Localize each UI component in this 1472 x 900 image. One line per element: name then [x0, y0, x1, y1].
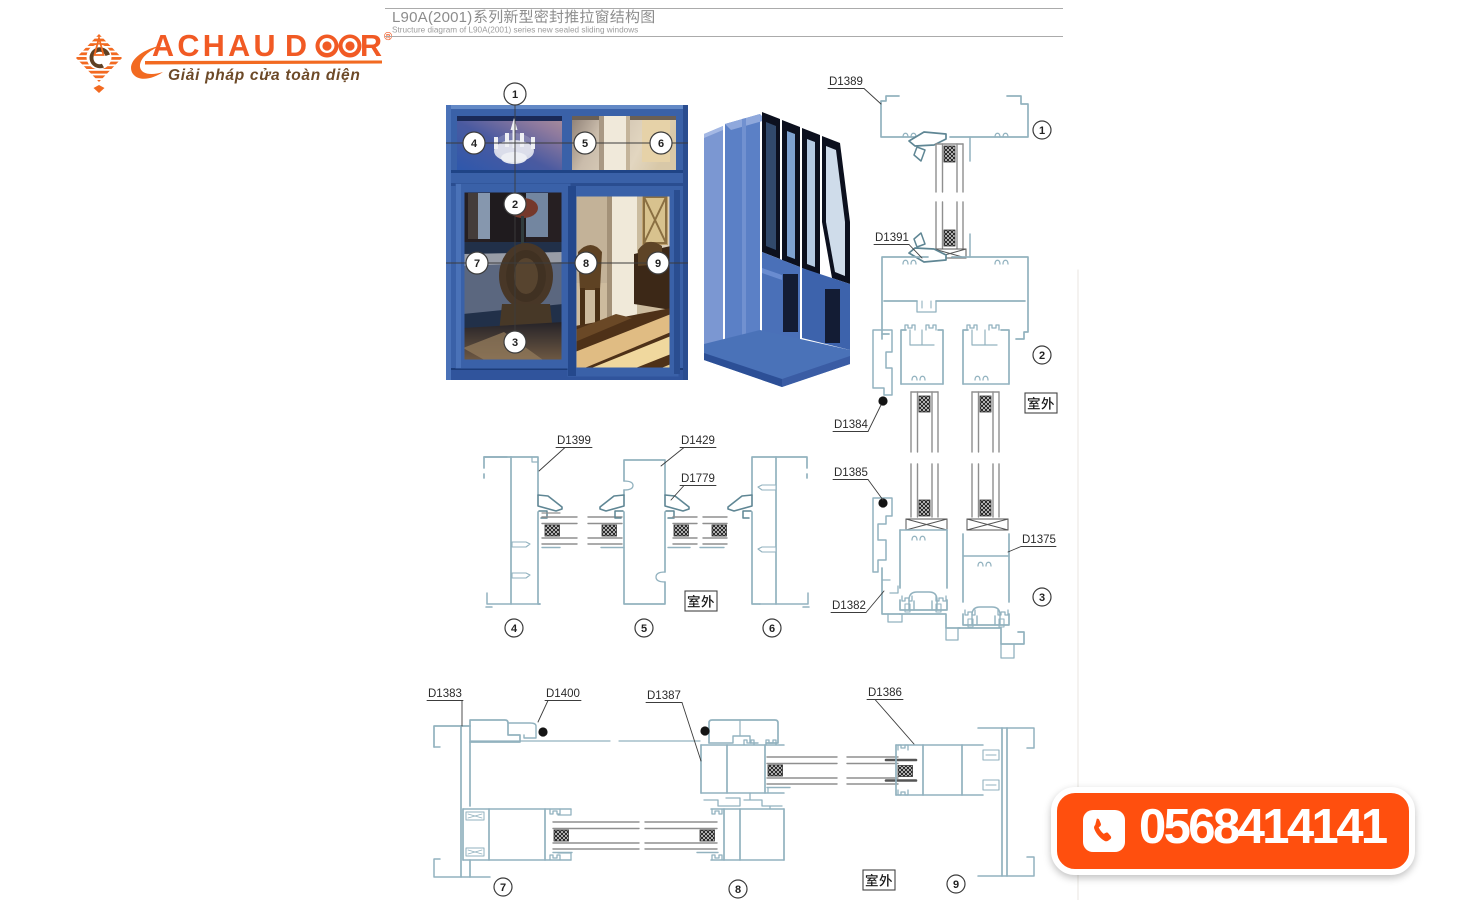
svg-text:D1389: D1389 [829, 76, 863, 88]
svg-text:D1384: D1384 [834, 419, 868, 431]
svg-text:D1375: D1375 [1022, 534, 1056, 546]
svg-text:D1383: D1383 [428, 688, 462, 700]
svg-text:D1391: D1391 [875, 232, 909, 244]
svg-text:8: 8 [735, 884, 741, 896]
svg-text:9: 9 [953, 879, 959, 891]
svg-text:D1382: D1382 [832, 600, 866, 612]
svg-text:1: 1 [512, 89, 518, 101]
svg-text:D1399: D1399 [557, 435, 591, 447]
svg-text:D1779: D1779 [681, 473, 715, 485]
svg-text:5: 5 [582, 138, 588, 150]
svg-text:D1385: D1385 [834, 467, 868, 479]
svg-text:3: 3 [512, 337, 518, 349]
svg-text:6: 6 [658, 138, 664, 150]
svg-text:2: 2 [512, 199, 518, 211]
svg-text:D1386: D1386 [868, 687, 902, 699]
svg-text:6: 6 [769, 623, 775, 635]
svg-text:4: 4 [511, 623, 518, 635]
svg-text:4: 4 [471, 138, 478, 150]
svg-text:2: 2 [1039, 350, 1045, 362]
svg-text:8: 8 [583, 258, 589, 270]
svg-text:1: 1 [1039, 125, 1045, 137]
svg-text:D1387: D1387 [647, 690, 681, 702]
svg-text:5: 5 [641, 623, 647, 635]
svg-text:D1429: D1429 [681, 435, 715, 447]
svg-text:3: 3 [1039, 592, 1045, 604]
svg-text:7: 7 [474, 258, 480, 270]
svg-text:D1400: D1400 [546, 688, 580, 700]
svg-text:7: 7 [500, 882, 506, 894]
svg-text:9: 9 [655, 258, 661, 270]
